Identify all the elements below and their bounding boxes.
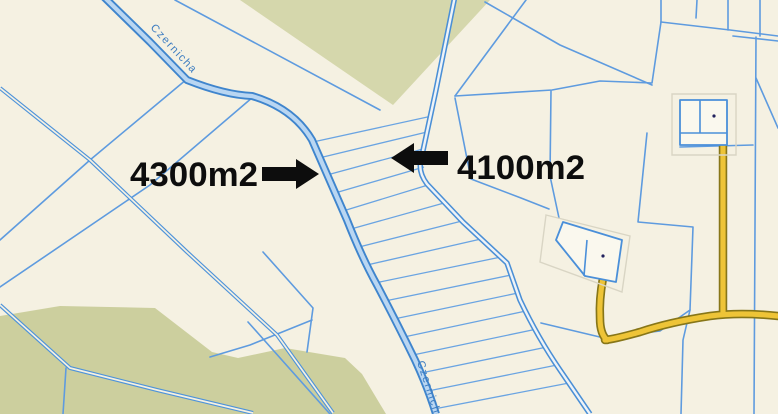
stream-name-label-bottom: Czernicha [414, 359, 445, 414]
area-label-4300: 4300m2 [130, 156, 258, 194]
arrow-right-icon [262, 159, 319, 189]
building-point [601, 254, 604, 257]
building-point [712, 114, 715, 117]
area-label-4100: 4100m2 [457, 149, 585, 187]
vegetation-areas [0, 0, 490, 414]
road-lines [600, 132, 778, 340]
map-canvas[interactable]: Czernicha Czernicha 4300m2 4100m2 [0, 0, 778, 414]
map-viewport[interactable]: Czernicha Czernicha 4300m2 4100m2 [0, 0, 778, 414]
stream-secondary [420, 0, 590, 414]
building-north [680, 100, 727, 145]
